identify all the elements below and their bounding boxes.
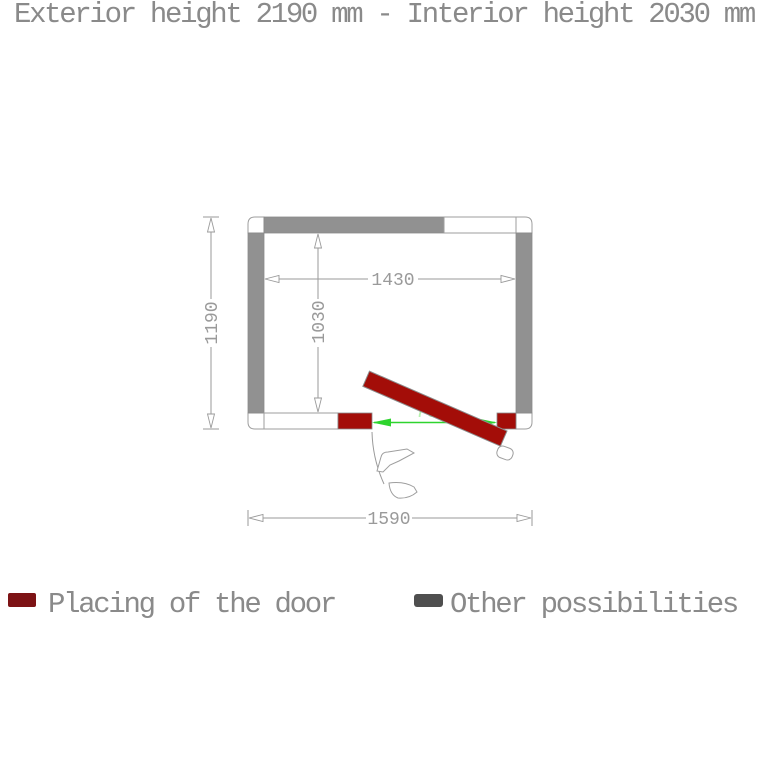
dimension-interior-width-value: 1430: [371, 271, 414, 291]
wall-bottom-plain-segment: [264, 413, 338, 429]
door-hinge-icon: [495, 445, 514, 462]
legend-door-label: Placing of the door: [48, 590, 335, 619]
door-jamb-right: [497, 413, 516, 429]
door-outer-handle-icon: [389, 483, 417, 499]
corner-bottom-left: [248, 413, 264, 429]
wall-top-other-possibility: [264, 217, 444, 233]
dimension-interior-height: 1030: [310, 234, 330, 412]
door-jamb-left: [338, 413, 372, 429]
legend-other-swatch: [414, 594, 443, 607]
dimension-exterior-width-value: 1590: [367, 510, 410, 530]
wall-left-other-possibility: [248, 233, 264, 413]
door-leaf-open: [363, 371, 507, 446]
dimension-interior-width: 1430: [265, 271, 515, 291]
dimension-exterior-width: 1590: [248, 510, 532, 530]
legend-other-label: Other possibilities: [450, 590, 737, 619]
wall-right-other-possibility: [516, 233, 532, 413]
floor-plan: 1190 1430 1030 700: [0, 0, 768, 768]
corner-top-left: [248, 217, 264, 233]
door-handle-icon: [377, 449, 414, 472]
page: Exterior height 2190 mm - Interior heigh…: [0, 0, 768, 768]
dimension-exterior-height-value: 1190: [203, 301, 223, 344]
corner-bottom-right: [516, 413, 532, 429]
wall-top-plain-segment: [444, 217, 516, 233]
corner-top-right: [516, 217, 532, 233]
legend-door-swatch: [8, 593, 36, 607]
dimension-exterior-height: 1190: [203, 217, 223, 429]
dimension-interior-height-value: 1030: [310, 300, 330, 343]
